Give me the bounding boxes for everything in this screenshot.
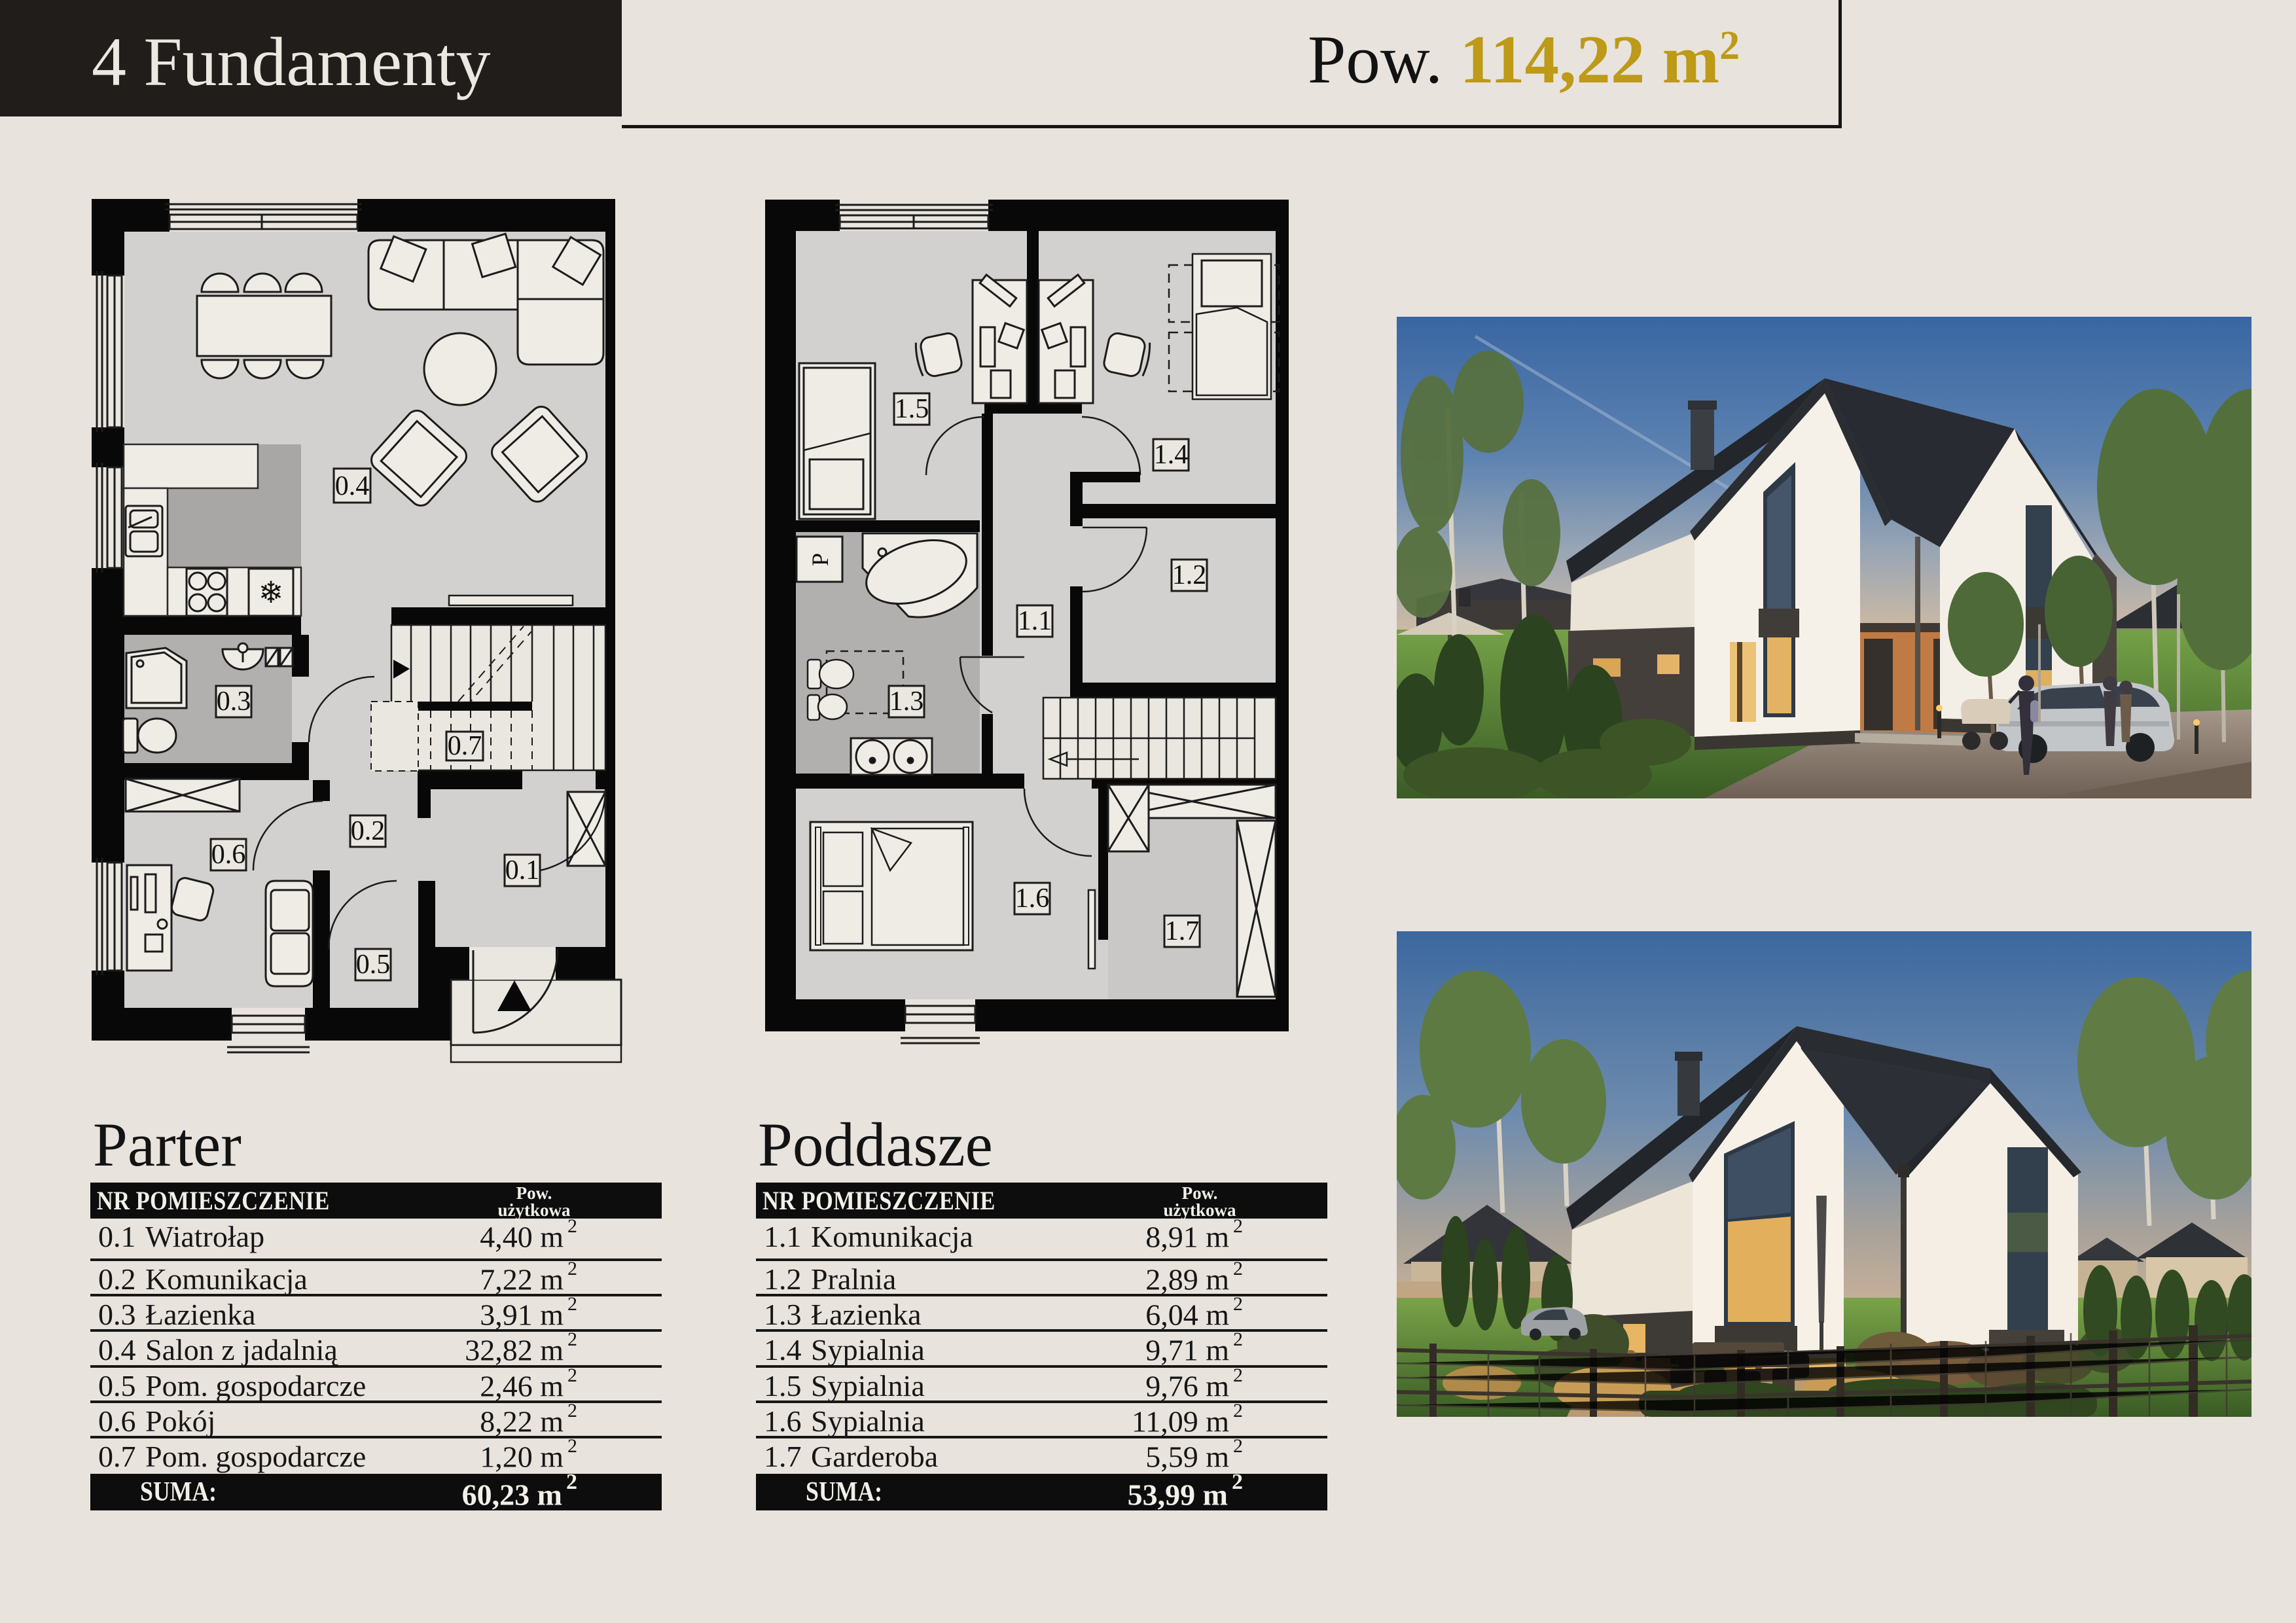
svg-text:1.4: 1.4 [1154,440,1189,470]
svg-text:0.3: 0.3 [217,687,251,717]
svg-text:0.6: 0.6 [211,840,246,870]
svg-text:0.4: 0.4 [335,471,370,501]
svg-text:0.7: 0.7 [448,731,482,761]
svg-text:1.2: 1.2 [1172,560,1207,590]
svg-text:1.6: 1.6 [1015,883,1050,914]
svg-text:1.1: 1.1 [1018,606,1052,636]
svg-text:0.5: 0.5 [356,950,391,980]
svg-text:1.5: 1.5 [895,394,929,424]
svg-text:1.7: 1.7 [1165,916,1200,946]
svg-text:❄: ❄ [259,575,284,609]
svg-text:P: P [807,553,833,566]
svg-text:0.1: 0.1 [505,855,540,885]
svg-text:1.3: 1.3 [889,687,924,717]
svg-text:0.2: 0.2 [351,816,386,846]
